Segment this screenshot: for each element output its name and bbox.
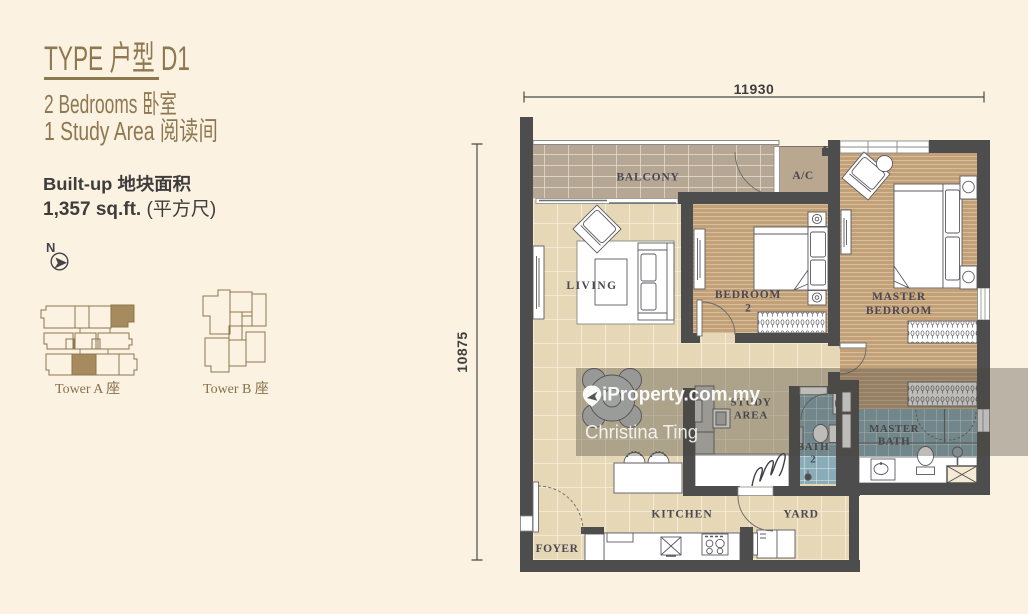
svg-text:10875: 10875 — [454, 331, 470, 372]
svg-text:2 Bedrooms 卧室: 2 Bedrooms 卧室 — [44, 89, 177, 119]
svg-text:iProperty.com.my: iProperty.com.my — [602, 384, 760, 406]
svg-text:MASTER: MASTER — [872, 291, 926, 303]
svg-text:A/C: A/C — [792, 170, 813, 182]
svg-text:BEDROOM: BEDROOM — [866, 305, 932, 317]
svg-text:BEDROOM: BEDROOM — [715, 289, 781, 301]
svg-text:LIVING: LIVING — [566, 280, 617, 292]
svg-text:KITCHEN: KITCHEN — [651, 509, 712, 521]
svg-text:TYPE 户型 D1: TYPE 户型 D1 — [44, 40, 190, 78]
svg-text:Tower B 座: Tower B 座 — [203, 381, 269, 397]
svg-text:Built-up 地块面积: Built-up 地块面积 — [43, 174, 192, 194]
svg-text:1 Study Area 阅读间: 1 Study Area 阅读间 — [44, 116, 218, 146]
svg-text:2: 2 — [745, 303, 751, 315]
svg-text:Tower A 座: Tower A 座 — [55, 381, 120, 397]
svg-text:YARD: YARD — [783, 509, 818, 521]
svg-text:11930: 11930 — [734, 81, 775, 97]
svg-text:Christina Ting: Christina Ting — [585, 422, 698, 444]
svg-text:BALCONY: BALCONY — [616, 172, 679, 184]
svg-text:FOYER: FOYER — [536, 543, 579, 555]
svg-text:N: N — [46, 240, 55, 255]
svg-text:1,357 sq.ft. (平方尺): 1,357 sq.ft. (平方尺) — [43, 198, 216, 220]
